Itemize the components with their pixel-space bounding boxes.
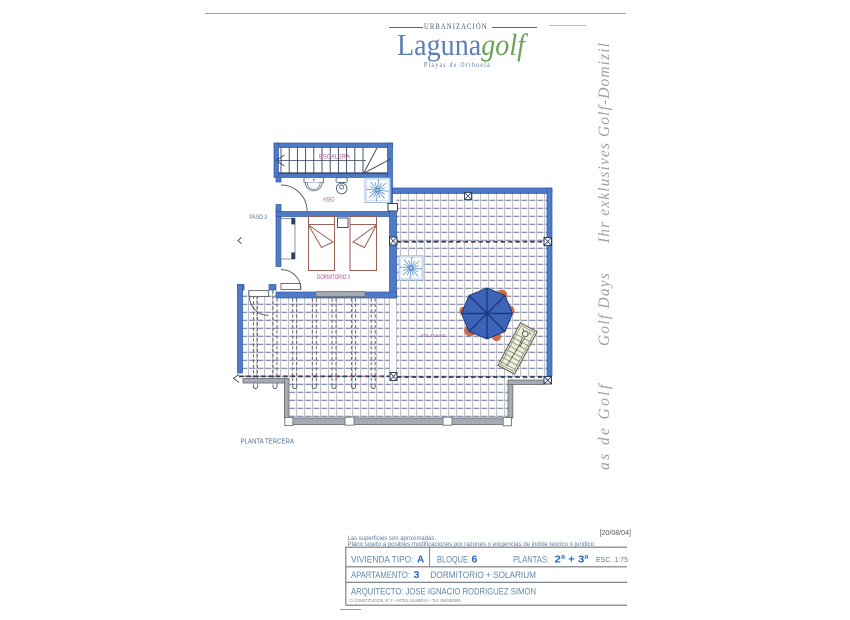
svg-text:SOL 44,6 M2: SOL 44,6 M2 <box>421 333 445 339</box>
svg-text:PASO 3: PASO 3 <box>250 214 268 221</box>
svg-text:A: A <box>417 555 424 566</box>
svg-text:BLOQUE:: BLOQUE: <box>437 555 470 565</box>
svg-text:6: 6 <box>472 554 478 566</box>
svg-text:2ª + 3ª: 2ª + 3ª <box>555 554 589 566</box>
svg-text:ASEO: ASEO <box>323 198 335 204</box>
svg-text:DORMITORIO 3: DORMITORIO 3 <box>317 275 350 281</box>
svg-text:ESC. 1:75: ESC. 1:75 <box>596 555 628 564</box>
svg-text:PLANTAS:: PLANTAS: <box>513 555 549 565</box>
svg-text:3: 3 <box>414 569 420 581</box>
svg-text:ARQUITECTO: JOSE IGNACIO RO: ARQUITECTO: JOSE IGNACIO RODRIGUEZ SIMON <box>351 587 536 597</box>
svg-text:C/ CONSTITUCION, Nº 7 - ARTES: C/ CONSTITUCION, Nº 7 - ARTES (ALMERIA) … <box>350 598 461 604</box>
svg-text:ESCALERA: ESCALERA <box>319 154 350 160</box>
svg-text:DORMITORIO + SOLARIUM: DORMITORIO + SOLARIUM <box>431 570 537 580</box>
svg-text:[20/08/04]: [20/08/04] <box>600 528 632 537</box>
svg-text:APARTAMENTO:: APARTAMENTO: <box>351 570 410 580</box>
svg-text:VIVIENDA TIPO:: VIVIENDA TIPO: <box>351 555 414 565</box>
svg-text:PLANTA TERCERA: PLANTA TERCERA <box>241 437 295 446</box>
